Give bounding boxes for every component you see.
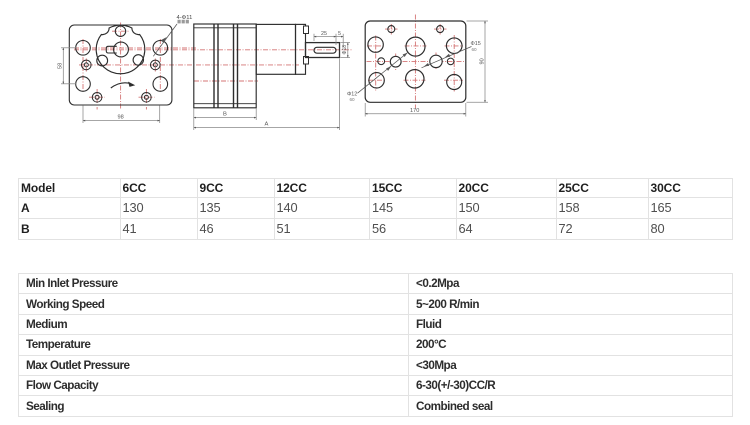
- svg-text:58: 58: [58, 63, 64, 69]
- svg-text:B: B: [223, 112, 227, 118]
- svg-text:98: 98: [118, 115, 124, 121]
- svg-text:60: 60: [350, 97, 356, 102]
- svg-text:60: 60: [472, 47, 478, 52]
- svg-text:170: 170: [410, 108, 419, 114]
- svg-text:25: 25: [321, 31, 327, 37]
- svg-text:90: 90: [479, 58, 485, 64]
- svg-text:A: A: [265, 122, 269, 128]
- svg-text:Φ18: Φ18: [342, 45, 348, 55]
- svg-text:5: 5: [338, 31, 341, 37]
